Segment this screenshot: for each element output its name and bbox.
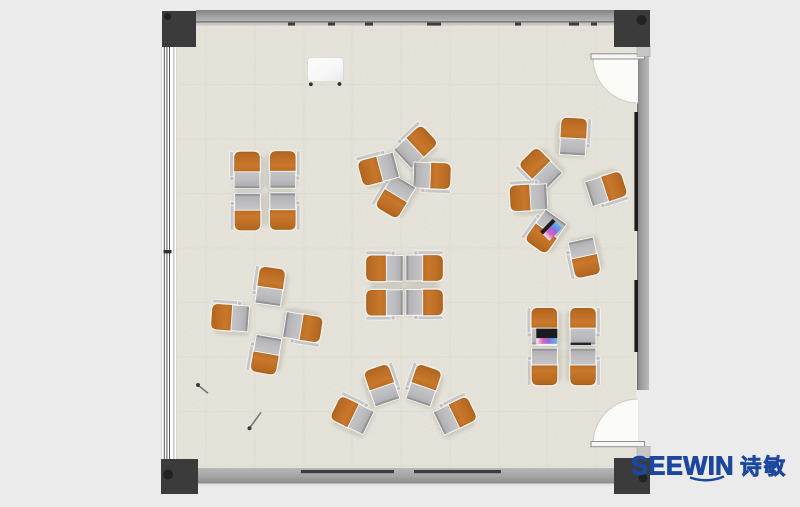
- svg-text:SEEWIN: SEEWIN: [631, 453, 734, 481]
- svg-text:诗敏: 诗敏: [740, 454, 787, 479]
